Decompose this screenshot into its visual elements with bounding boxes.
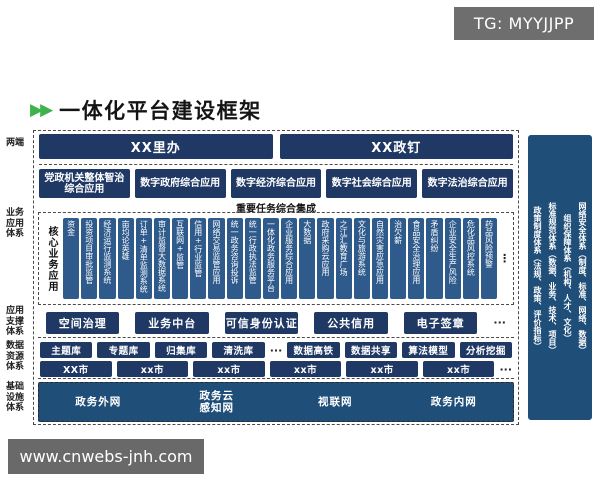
network-cell: 政务内网: [395, 383, 514, 421]
core-business-bar: 之江汇教育广场: [336, 218, 352, 299]
network-cell: 政务云 感知网: [158, 383, 277, 421]
core-business-bar-label: 危化品风控系统: [466, 218, 475, 299]
core-business-bar: 经济运行监测系统: [99, 218, 115, 299]
core-business-bar-label: 食品安全治理应用: [412, 218, 421, 299]
core-business-bar-label: 之江汇教育广场: [339, 218, 348, 299]
core-business-bar-label: 统一行政执法监管: [248, 218, 257, 299]
core-business-bar-label: 一体化政务服务平台: [266, 218, 275, 299]
governance-system-column: 网络安全体系（制度、标准、网络、数据）: [578, 141, 587, 414]
data-library-box: 清洗库: [212, 342, 264, 358]
comprehensive-app-box: 数字法治综合应用: [422, 169, 513, 198]
core-business-bar: 大数据: [299, 218, 315, 299]
tier-label-infrastructure-system: 基础设施体系: [2, 382, 28, 414]
core-business-bar: 亩均论英雄: [118, 218, 134, 299]
city-box: xx市: [193, 361, 265, 377]
support-platform-box: 电子签章: [404, 312, 477, 334]
tier-label-data-system: 数据资源体系: [2, 341, 28, 373]
network-cell: 政务外网: [39, 383, 158, 421]
core-business-bar: 企业服务综合应用: [281, 218, 297, 299]
data-libraries-ellipsis: ···: [270, 344, 283, 357]
core-business-bar: 危化品风控系统: [463, 218, 479, 299]
data-library-box: 主题库: [40, 342, 92, 358]
core-business-bar-label: 统一政务咨询投诉: [230, 218, 239, 299]
core-business-section: 核心业务应用 资金 投资项目审批监管 经济运行监测系统 亩均论英雄: [38, 212, 514, 305]
page-title-row: ▶▶ 一体化平台建设框架: [30, 95, 262, 125]
city-box: xx市: [270, 361, 342, 377]
core-business-bar-label: 审计监督大数据系统: [157, 218, 166, 299]
core-business-bar: 网络交易监管应用: [208, 218, 224, 299]
core-business-bar-label: 文化与旅游系统: [357, 218, 366, 299]
comprehensive-app-box: 数字社会综合应用: [326, 169, 417, 198]
core-business-label: 核心业务应用: [44, 226, 59, 292]
support-more-ellipsis: ···: [493, 316, 506, 329]
core-business-bar: 信用+行业监管: [190, 218, 206, 299]
core-business-bar-label: 自然灾害应急应用: [376, 218, 385, 299]
core-business-bar-label: 网络交易监管应用: [212, 218, 221, 299]
watermark: www.cnwebs-jnh.com: [8, 439, 204, 474]
core-business-bar-label: 企业安全生产风险: [448, 218, 457, 299]
comprehensive-app-box: 党政机关整体智治综合应用: [39, 169, 130, 198]
data-service-box: 数据高铁: [287, 342, 339, 358]
network-name: 政务云: [200, 390, 235, 402]
core-business-bar: 治欠薪: [390, 218, 406, 299]
governance-systems-panel: 政策制度体系（法规、政策、评价指标） 标准规范体系（数据、业务、技术、项目） 组…: [528, 135, 592, 420]
comprehensive-app-box: 数字政府综合应用: [135, 169, 226, 198]
network-name: 政务内网: [431, 396, 477, 408]
core-more-ellipsis: ⋮: [499, 252, 510, 265]
core-business-bar: 政府采购云应用: [317, 218, 333, 299]
core-business-bar-label: 互联网+监管: [176, 218, 185, 299]
core-business-bar: 投资项目审批监管: [81, 218, 97, 299]
double-arrow-icon: ▶▶: [30, 102, 50, 119]
data-library-box: 专题库: [97, 342, 149, 358]
core-business-bar-label: 矛盾纠纷: [430, 218, 439, 299]
network-name: 政务外网: [75, 396, 121, 408]
governance-system-column: 政策制度体系（法规、政策、评价指标）: [533, 141, 542, 414]
city-box: xx市: [117, 361, 189, 377]
core-business-bar-label: 大数据: [303, 218, 312, 299]
cities-more-ellipsis: ···: [499, 363, 512, 376]
city-box: xx市: [423, 361, 495, 377]
core-business-bar: 矛盾纠纷: [426, 218, 442, 299]
data-services-row: 主题库 专题库 归集库 清洗库 ··· 数据高铁 数据共享 算法模型 分析挖: [40, 342, 512, 358]
core-business-bar: 企业安全生产风险: [445, 218, 461, 299]
core-business-bar: 统一行政执法监管: [245, 218, 261, 299]
core-business-bar: 一体化政务服务平台: [263, 218, 279, 299]
network-cell: 视联网: [276, 383, 395, 421]
governance-system-column: 组织保障体系（机构、人才、文化）: [563, 141, 572, 414]
tier-label-business-system: 业务应用体系: [2, 208, 28, 240]
cities-row: XX市 xx市 xx市 xx市 xx市 xx市 ···: [40, 361, 512, 377]
data-library-box: 归集库: [155, 342, 207, 358]
core-business-bar: 互联网+监管: [172, 218, 188, 299]
core-business-bar-label: 亩均论英雄: [121, 218, 130, 299]
support-platform-box: 可信身份认证: [225, 312, 298, 334]
core-business-bar: 食品安全治理应用: [408, 218, 424, 299]
core-business-bar: 订单+清单监测系统: [136, 218, 152, 299]
city-box: XX市: [40, 361, 112, 377]
core-business-bar-label: 订单+清单监测系统: [139, 218, 148, 299]
comprehensive-app-box: 数字经济综合应用: [231, 169, 322, 198]
support-platform-box: 业务中台: [135, 312, 208, 334]
core-business-bar-label: 企业服务综合应用: [285, 218, 294, 299]
terminal-box: XX政钉: [280, 134, 514, 159]
core-business-bar-label: 资金: [67, 218, 76, 299]
terminals-row: XX里办 XX政钉: [39, 134, 513, 159]
core-business-bar: 自然灾害应急应用: [372, 218, 388, 299]
tier-label-terminals: 两端: [2, 138, 28, 149]
core-business-bar: 文化与旅游系统: [354, 218, 370, 299]
core-business-bar: 药品风险预警: [481, 218, 497, 299]
support-platform-row: 空间治理 业务中台 可信身份认证 公共信用 电子签章 ···: [38, 310, 514, 335]
core-business-bar-label: 药品风险预警: [485, 218, 494, 299]
core-business-bar-label: 政府采购云应用: [321, 218, 330, 299]
core-business-bar-label: 经济运行监测系统: [103, 218, 112, 299]
network-name: 视联网: [318, 396, 353, 408]
support-platform-box: 公共信用: [314, 312, 387, 334]
tg-badge: TG: MYYJJPP: [454, 7, 594, 40]
network-name-line2: 感知网: [200, 402, 235, 414]
comprehensive-apps-row: 党政机关整体智治综合应用 数字政府综合应用 数字经济综合应用 数字社会综合应用 …: [39, 164, 513, 198]
data-resource-section: 主题库 专题库 归集库 清洗库 ··· 数据高铁 数据共享 算法模型 分析挖: [38, 337, 514, 379]
tier-label-support-system: 应用支撑体系: [2, 306, 28, 338]
data-service-box: 分析挖掘: [460, 342, 512, 358]
core-business-bar: 审计监督大数据系统: [154, 218, 170, 299]
core-business-bar: 资金: [63, 218, 79, 299]
framework-container: XX里办 XX政钉 党政机关整体智治综合应用 数字政府综合应用 数字经济综合应用…: [33, 130, 519, 425]
data-service-box: 算法模型: [402, 342, 454, 358]
core-business-bar-label: 治欠薪: [394, 218, 403, 299]
core-business-bar-label: 信用+行业监管: [194, 218, 203, 299]
city-box: xx市: [346, 361, 418, 377]
data-service-box: 数据共享: [345, 342, 397, 358]
infrastructure-networks-box: 政务外网 政务云 感知网 视联网 政务内网: [38, 382, 514, 422]
page-title: 一体化平台建设框架: [59, 95, 262, 125]
support-platform-box: 空间治理: [46, 312, 119, 334]
core-business-bar: 统一政务咨询投诉: [227, 218, 243, 299]
governance-system-column: 标准规范体系（数据、业务、技术、项目）: [548, 141, 557, 414]
terminal-box: XX里办: [39, 134, 273, 159]
core-business-bar-label: 投资项目审批监管: [85, 218, 94, 299]
